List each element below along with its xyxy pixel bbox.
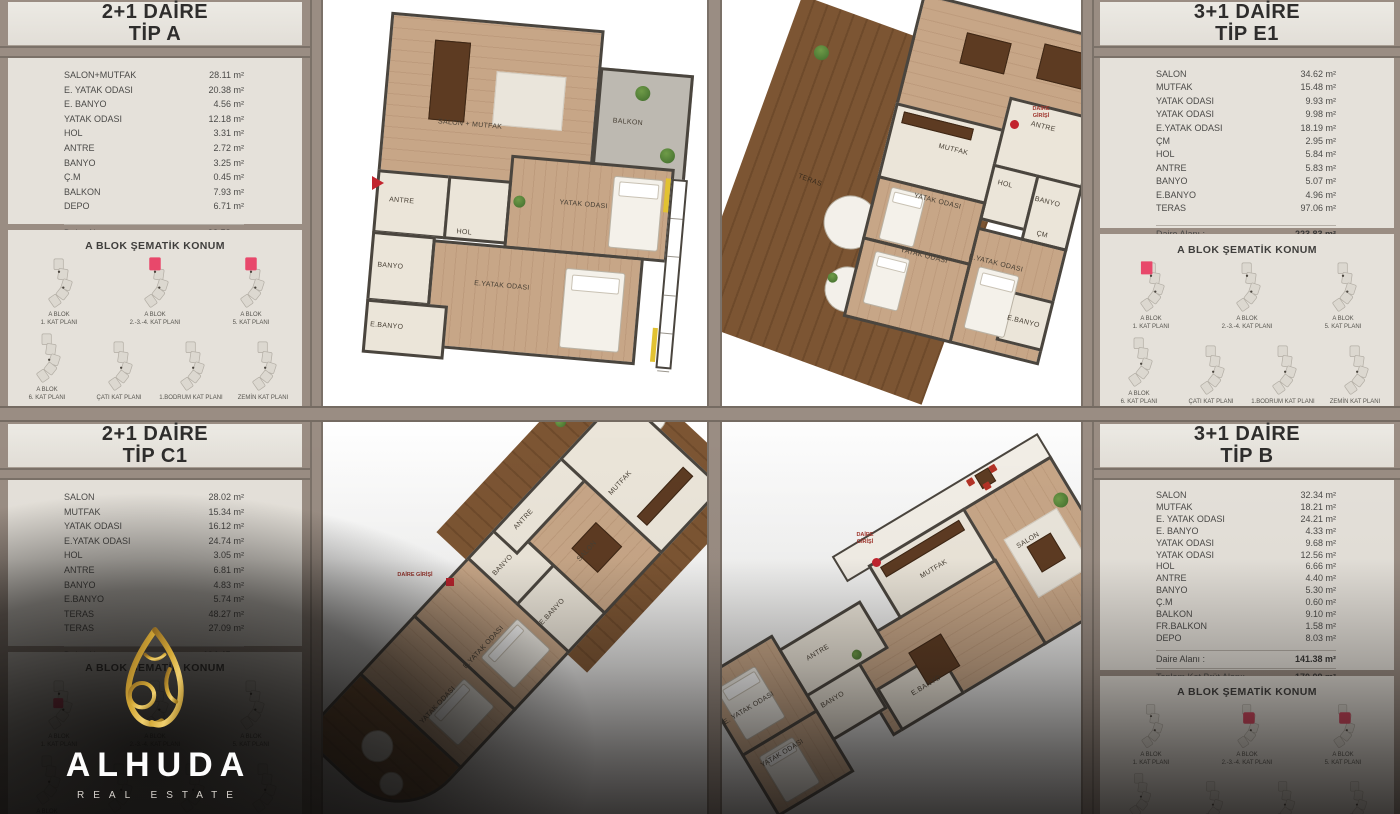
block-schematic-icon <box>25 331 69 387</box>
e-banyo-room <box>362 299 448 360</box>
table-row: TERAS97.06 m² <box>1156 202 1336 215</box>
floor-thumbnail: A BLOK2.-3.-4. KAT PLANI <box>1216 702 1278 767</box>
table-row: E. BANYO4.33 m² <box>1156 526 1336 538</box>
tip-c1-title: 2+1 DAİRE TİP C1 <box>8 424 302 468</box>
table-row: ANTRE5.83 m² <box>1156 162 1336 175</box>
tip-e1-title: 3+1 DAİRE TİP E1 <box>1100 2 1394 46</box>
floor-thumbnail: A BLOK6. KAT PLANI <box>1108 771 1170 814</box>
alhuda-emblem-icon <box>103 622 207 744</box>
block-schematic-icon <box>97 339 141 395</box>
tip-e1-table: SALON34.62 m²MUTFAK15.48 m²YATAK ODASI9.… <box>1100 58 1394 228</box>
divider <box>0 46 310 58</box>
tip-a-table: SALON+MUTFAK28.11 m²E. YATAK ODASI20.38 … <box>8 58 302 224</box>
divider <box>0 406 1400 422</box>
table-row: YATAK ODASI12.18 m² <box>64 112 244 127</box>
floor-thumbnail: A BLOK5. KAT PLANI <box>1312 260 1374 331</box>
floor-thumbnail: ZEMİN KAT PLANI <box>1324 343 1386 407</box>
table-row: E. YATAK ODASI24.21 m² <box>1156 514 1336 526</box>
block-schematic-icon <box>37 256 81 312</box>
unit-name: TİP A <box>129 24 182 46</box>
entrance-marker <box>872 558 881 567</box>
block-schematic-icon <box>1119 771 1159 814</box>
floor-thumbnail: 1.BODRUM KAT PLANI <box>160 339 222 403</box>
table-row: TERAS48.27 m² <box>64 607 244 622</box>
block-schematic-icon <box>1323 702 1363 752</box>
floor-thumbnail: ÇATI KAT PLANI <box>88 339 150 403</box>
table-row: E. BANYO4.56 m² <box>64 97 244 112</box>
table-row: ÇM2.95 m² <box>1156 135 1336 148</box>
table-row: E. YATAK ODASI20.38 m² <box>64 83 244 98</box>
floor-thumbnail: A BLOK6. KAT PLANI <box>1108 335 1170 406</box>
block-schematic-icon <box>1189 343 1233 399</box>
floorplan-tip-b: MUTFAKSALONANTREBANYOE.BANYOYATAK ODASIE… <box>722 422 1081 814</box>
entrance-marker <box>446 578 454 586</box>
table-row: YATAK ODASI16.12 m² <box>64 519 244 534</box>
sematik-row1: A BLOK1. KAT PLANI A BLOK2.-3.-4. KAT PL… <box>1100 702 1394 767</box>
table-row: DEPO8.03 m² <box>1156 633 1336 645</box>
block-schematic-icon <box>1335 779 1375 814</box>
floorplan-tip-a: SALON + MUTFAKBALKONANTREHOLBANYOYATAK O… <box>322 0 707 406</box>
block-schematic-icon <box>169 339 213 395</box>
room-list: SALON28.02 m²MUTFAK15.34 m²YATAK ODASI16… <box>8 490 302 636</box>
table-row: YATAK ODASI9.93 m² <box>1156 95 1336 108</box>
table-row: SALON28.02 m² <box>64 490 244 505</box>
table-row: BANYO5.07 m² <box>1156 175 1336 188</box>
room-label: HOL <box>456 228 472 236</box>
sematik-row2: A BLOK6. KAT PLANI ÇATI KAT PLANI <box>1100 335 1394 406</box>
table-row: YATAK ODASI9.68 m² <box>1156 538 1336 550</box>
entrance-marker <box>1010 120 1019 129</box>
table-row: HOL6.66 m² <box>1156 561 1336 573</box>
table-row: Ç.M0.45 m² <box>64 170 244 185</box>
table-row: ANTRE6.81 m² <box>64 563 244 578</box>
floorplan-tip-e1: TERAS MUTFAKANTREHOLBANYOYATAK ODASIYATA… <box>722 0 1081 406</box>
floor-thumbnail: 1.BODRUM KAT PLANI <box>1252 779 1314 814</box>
divider <box>1094 468 1400 480</box>
table-row: YATAK ODASI9.98 m² <box>1156 108 1336 121</box>
floor-thumbnail: ÇATI KAT PLANI <box>1180 343 1242 407</box>
block-schematic-icon <box>1261 343 1305 399</box>
hol-room <box>443 175 512 244</box>
table-row: BANYO4.83 m² <box>64 578 244 593</box>
block-schematic-icon <box>133 256 177 312</box>
entrance-arrow-icon <box>372 176 384 190</box>
sematik-row1: A BLOK 1. KAT PLANI <box>8 256 302 327</box>
block-schematic-icon <box>1191 779 1231 814</box>
divider <box>1094 46 1400 58</box>
table-row: BANYO3.25 m² <box>64 156 244 171</box>
floor-thumbnail: A BLOK 5. KAT PLANI <box>220 256 282 327</box>
floor-thumbnail: ZEMİN KAT PLANI <box>232 339 294 403</box>
logo-name: ALHUDA <box>59 746 252 785</box>
sematik-title: A BLOK ŞEMATİK KONUM <box>1100 686 1394 698</box>
block-schematic-icon <box>241 339 285 395</box>
block-schematic-icon <box>1117 335 1161 391</box>
table-row: HOL5.84 m² <box>1156 148 1336 161</box>
floorplan-tip-c1: MUTFAKANTRESALONBANYOE.BANYOE.YATAK ODAS… <box>322 422 707 814</box>
block-schematic-icon <box>1333 343 1377 399</box>
room-list: SALON+MUTFAK28.11 m²E. YATAK ODASI20.38 … <box>8 68 302 214</box>
alhuda-logo: ALHUDA REAL ESTATE <box>30 622 280 801</box>
logo-subtitle: REAL ESTATE <box>68 790 242 801</box>
divider <box>0 468 310 480</box>
tip-b-table: SALON32.34 m²MUTFAK18.21 m²E. YATAK ODAS… <box>1100 480 1394 670</box>
unit-name: TİP B <box>1220 446 1273 468</box>
table-row: Ç.M0.60 m² <box>1156 597 1336 609</box>
floor-thumbnail: A BLOK1. KAT PLANI <box>1120 260 1182 331</box>
block-schematic-icon <box>1225 260 1269 316</box>
daire-alani-label: Daire Alanı : <box>1156 654 1205 664</box>
floor-thumbnail: A BLOK1. KAT PLANI <box>1120 702 1182 767</box>
unit-name: TİP C1 <box>123 446 188 468</box>
floor-thumbnail: 1.BODRUM KAT PLANI <box>1252 343 1314 407</box>
tip-a-sematik: A BLOK ŞEMATİK KONUM <box>8 230 302 406</box>
table-row: SALON+MUTFAK28.11 m² <box>64 68 244 83</box>
brochure-page: 2+1 DAİRE TİP A SALON+MUTFAK28.11 m²E. Y… <box>0 0 1400 814</box>
unit-type: 2+1 DAİRE <box>102 2 208 24</box>
floor-thumbnail: A BLOK 2.-3.-4. KAT PLANI <box>124 256 186 327</box>
block-schematic-icon <box>1131 702 1171 752</box>
daire-alani-value: 141.38 m² <box>1295 654 1336 664</box>
table-row: SALON34.62 m² <box>1156 68 1336 81</box>
floor-thumbnail: ZEMİN KAT PLANI <box>1324 779 1386 814</box>
plan-b-body: MUTFAKSALONANTREBANYOE.BANYOYATAK ODASIE… <box>722 455 1081 808</box>
entrance-label: DAİRE GİRİŞİ <box>1026 106 1056 119</box>
teras-label: TERAS <box>797 173 823 188</box>
table-row: HOL3.31 m² <box>64 126 244 141</box>
unit-type: 3+1 DAİRE <box>1194 2 1300 24</box>
sematik-row1: A BLOK1. KAT PLANI A BLOK2.-3.-4. KAT PL… <box>1100 260 1394 331</box>
table-row: HOL3.05 m² <box>64 548 244 563</box>
table-row: SALON32.34 m² <box>1156 490 1336 502</box>
sematik-row2: A BLOK6. KAT PLANI ÇATI KAT PLANI <box>1100 771 1394 814</box>
floor-thumbnail: A BLOK2.-3.-4. KAT PLANI <box>1216 260 1278 331</box>
unit-name: TİP E1 <box>1215 24 1279 46</box>
table-row: MUTFAK15.48 m² <box>1156 81 1336 94</box>
block-schematic-icon <box>1263 779 1303 814</box>
tip-a-title: 2+1 DAİRE TİP A <box>8 2 302 46</box>
sematik-row2: A BLOK 6. KAT PLANI <box>8 331 302 402</box>
block-schematic-icon <box>1321 260 1365 316</box>
floor-thumbnail: ÇATI KAT PLANI <box>1180 779 1242 814</box>
table-row: ANTRE2.72 m² <box>64 141 244 156</box>
floor-thumbnail: A BLOK 1. KAT PLANI <box>28 256 90 327</box>
table-row: YATAK ODASI12.56 m² <box>1156 550 1336 562</box>
entrance-label: DAİRE GİRİŞİ <box>388 572 442 579</box>
table-row: BALKON9.10 m² <box>1156 609 1336 621</box>
tip-b-title: 3+1 DAİRE TİP B <box>1100 424 1394 468</box>
table-row: E.YATAK ODASI24.74 m² <box>64 534 244 549</box>
block-schematic-icon <box>1129 260 1173 316</box>
entrance-label: DAİRE GİRİŞİ <box>850 532 880 545</box>
tip-e1-sematik: A BLOK ŞEMATİK KONUM A BLOK1. KAT PLANI <box>1100 234 1394 406</box>
sematik-title: A BLOK ŞEMATİK KONUM <box>1100 244 1394 256</box>
room-list: SALON32.34 m²MUTFAK18.21 m²E. YATAK ODAS… <box>1100 490 1394 645</box>
table-row: E.BANYO4.96 m² <box>1156 189 1336 202</box>
block-schematic-icon <box>1227 702 1267 752</box>
sematik-title: A BLOK ŞEMATİK KONUM <box>8 240 302 252</box>
unit-type: 2+1 DAİRE <box>102 424 208 446</box>
plan-a-body: SALON + MUTFAKBALKONANTREHOLBANYOYATAK O… <box>349 3 699 388</box>
room-list: SALON34.62 m²MUTFAK15.48 m²YATAK ODASI9.… <box>1100 68 1394 215</box>
block-schematic-icon <box>229 256 273 312</box>
table-row: FR.BALKON1.58 m² <box>1156 621 1336 633</box>
table-row: BALKON7.93 m² <box>64 185 244 200</box>
tip-b-sematik: A BLOK ŞEMATİK KONUM A BLOK1. KAT PLANI <box>1100 676 1394 814</box>
floor-thumbnail: A BLOK5. KAT PLANI <box>1312 702 1374 767</box>
table-row: MUTFAK18.21 m² <box>1156 502 1336 514</box>
table-row: MUTFAK15.34 m² <box>64 505 244 520</box>
table-row: DEPO6.71 m² <box>64 199 244 214</box>
table-row: E.YATAK ODASI18.19 m² <box>1156 122 1336 135</box>
floor-thumbnail: A BLOK 6. KAT PLANI <box>16 331 78 402</box>
table-row: ANTRE4.40 m² <box>1156 573 1336 585</box>
unit-type: 3+1 DAİRE <box>1194 424 1300 446</box>
table-row: E.BANYO5.74 m² <box>64 592 244 607</box>
table-row: BANYO5.30 m² <box>1156 585 1336 597</box>
